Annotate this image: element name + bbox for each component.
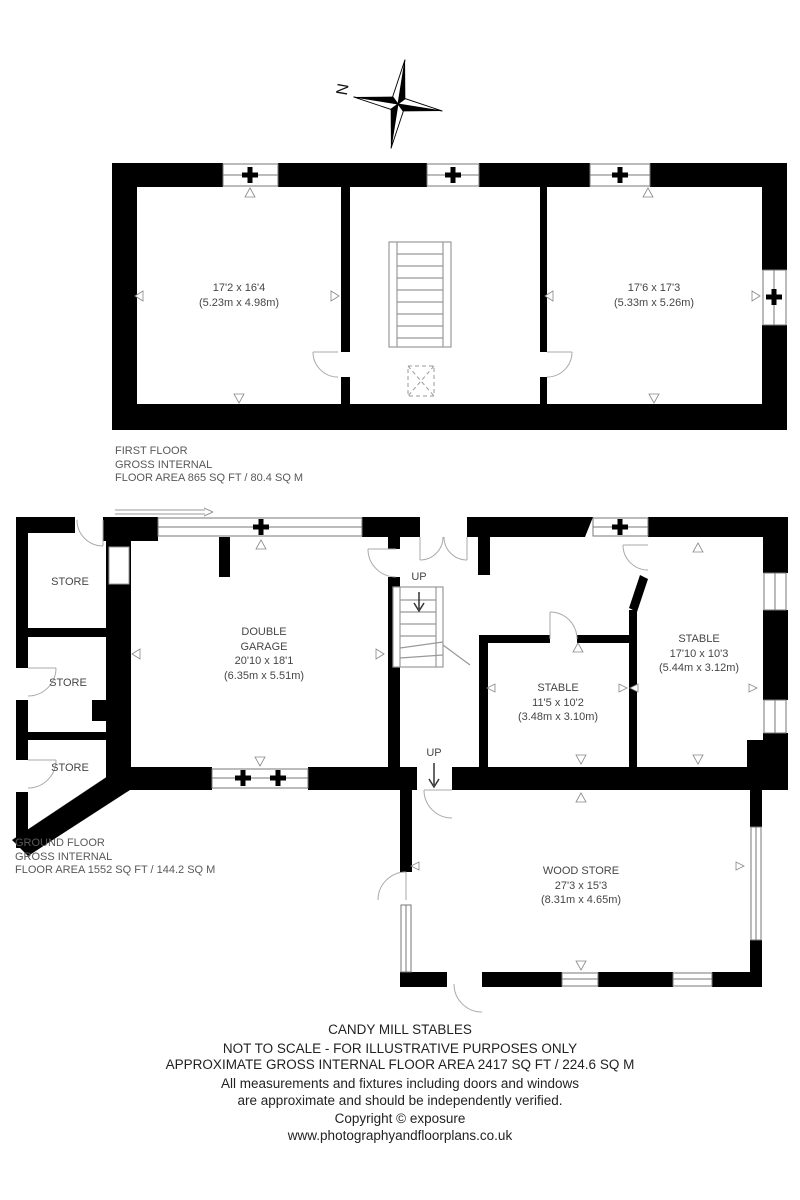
room-dims-ft: 20'10 x 18'1 xyxy=(224,654,304,669)
ground-floor-markers xyxy=(132,540,757,970)
room-label-first-floor-right: 17'6 x 17'3 (5.33m x 5.26m) xyxy=(614,281,694,310)
footer-copyright: Copyright © exposure xyxy=(335,1111,466,1126)
room-dims-m: (6.35m x 5.51m) xyxy=(224,669,304,684)
ground-floor-plan xyxy=(12,508,788,1012)
first-floor-area-label: FIRST FLOOR GROSS INTERNAL FLOOR AREA 86… xyxy=(115,445,303,486)
room-label-first-floor-left: 17'2 x 16'4 (5.23m x 4.98m) xyxy=(199,281,279,310)
first-floor-windows xyxy=(223,164,786,325)
room-name: STORE xyxy=(49,676,87,691)
room-dims-ft: 11'5 x 10'2 xyxy=(518,696,598,711)
wall-lip-lines xyxy=(115,508,213,516)
room-name: STORE xyxy=(51,761,89,776)
room-dims-m: (8.31m x 4.65m) xyxy=(541,893,621,908)
footer-disclaimer-2: are approximate and should be independen… xyxy=(238,1093,563,1108)
room-label-store-2: STORE xyxy=(49,676,87,691)
footer-disclaimer-1: All measurements and fixtures including … xyxy=(221,1076,579,1091)
floor-area: FLOOR AREA 865 SQ FT / 80.4 SQ M xyxy=(115,472,303,486)
floor-gross: GROSS INTERNAL xyxy=(15,851,215,865)
room-dims-ft: 17'10 x 10'3 xyxy=(659,647,739,662)
footer-title: CANDY MILL STABLES xyxy=(328,1022,472,1037)
footer-total-area: APPROXIMATE GROSS INTERNAL FLOOR AREA 24… xyxy=(166,1057,635,1072)
room-name: STABLE xyxy=(659,632,739,647)
floor-plan-drawing: N xyxy=(0,0,800,1200)
room-dims-m: (5.23m x 4.98m) xyxy=(199,296,279,311)
ground-floor-area-label: GROUND FLOOR GROSS INTERNAL FLOOR AREA 1… xyxy=(15,837,215,878)
room-dims-m: (5.33m x 5.26m) xyxy=(614,296,694,311)
room-name: STABLE xyxy=(518,681,598,696)
roof-hatch-icon xyxy=(408,366,434,396)
room-name: WOOD STORE xyxy=(541,864,621,879)
floor-name: FIRST FLOOR xyxy=(115,445,303,459)
footer-website: www.photographyandfloorplans.co.uk xyxy=(288,1128,512,1143)
room-name: STORE xyxy=(51,575,89,590)
room-label-double-garage: DOUBLE GARAGE 20'10 x 18'1 (6.35m x 5.51… xyxy=(224,625,304,683)
room-dims-ft: 27'3 x 15'3 xyxy=(541,879,621,894)
room-label-wood-store: WOOD STORE 27'3 x 15'3 (8.31m x 4.65m) xyxy=(541,864,621,908)
room-dims-ft: 17'6 x 17'3 xyxy=(614,281,694,296)
floor-area: FLOOR AREA 1552 SQ FT / 144.2 SQ M xyxy=(15,864,215,878)
room-dims-m: (5.44m x 3.12m) xyxy=(659,661,739,676)
floor-plan-page: N xyxy=(0,0,800,1200)
first-floor-doors xyxy=(313,352,572,377)
up-label-1: UP xyxy=(411,571,426,583)
room-label-stable-large: STABLE 17'10 x 10'3 (5.44m x 3.12m) xyxy=(659,632,739,676)
floor-gross: GROSS INTERNAL xyxy=(115,459,303,473)
room-name: DOUBLE xyxy=(224,625,304,640)
ground-floor-windows xyxy=(158,518,786,986)
garage-store-opening xyxy=(109,547,129,584)
first-floor-staircase xyxy=(389,242,451,347)
compass-rose-icon xyxy=(347,53,450,156)
floor-name: GROUND FLOOR xyxy=(15,837,215,851)
compass-north-label: N xyxy=(332,82,351,96)
room-dims-m: (3.48m x 3.10m) xyxy=(518,710,598,725)
room-dims-ft: 17'2 x 16'4 xyxy=(199,281,279,296)
room-label-stable-small: STABLE 11'5 x 10'2 (3.48m x 3.10m) xyxy=(518,681,598,725)
room-label-store-1: STORE xyxy=(51,575,89,590)
room-label-store-3: STORE xyxy=(51,761,89,776)
ground-floor-staircase xyxy=(393,587,470,667)
window-mullion-icons xyxy=(242,167,782,305)
footer-not-to-scale: NOT TO SCALE - FOR ILLUSTRATIVE PURPOSES… xyxy=(223,1041,577,1056)
up-label-2: UP xyxy=(426,747,441,759)
room-name: GARAGE xyxy=(224,640,304,655)
